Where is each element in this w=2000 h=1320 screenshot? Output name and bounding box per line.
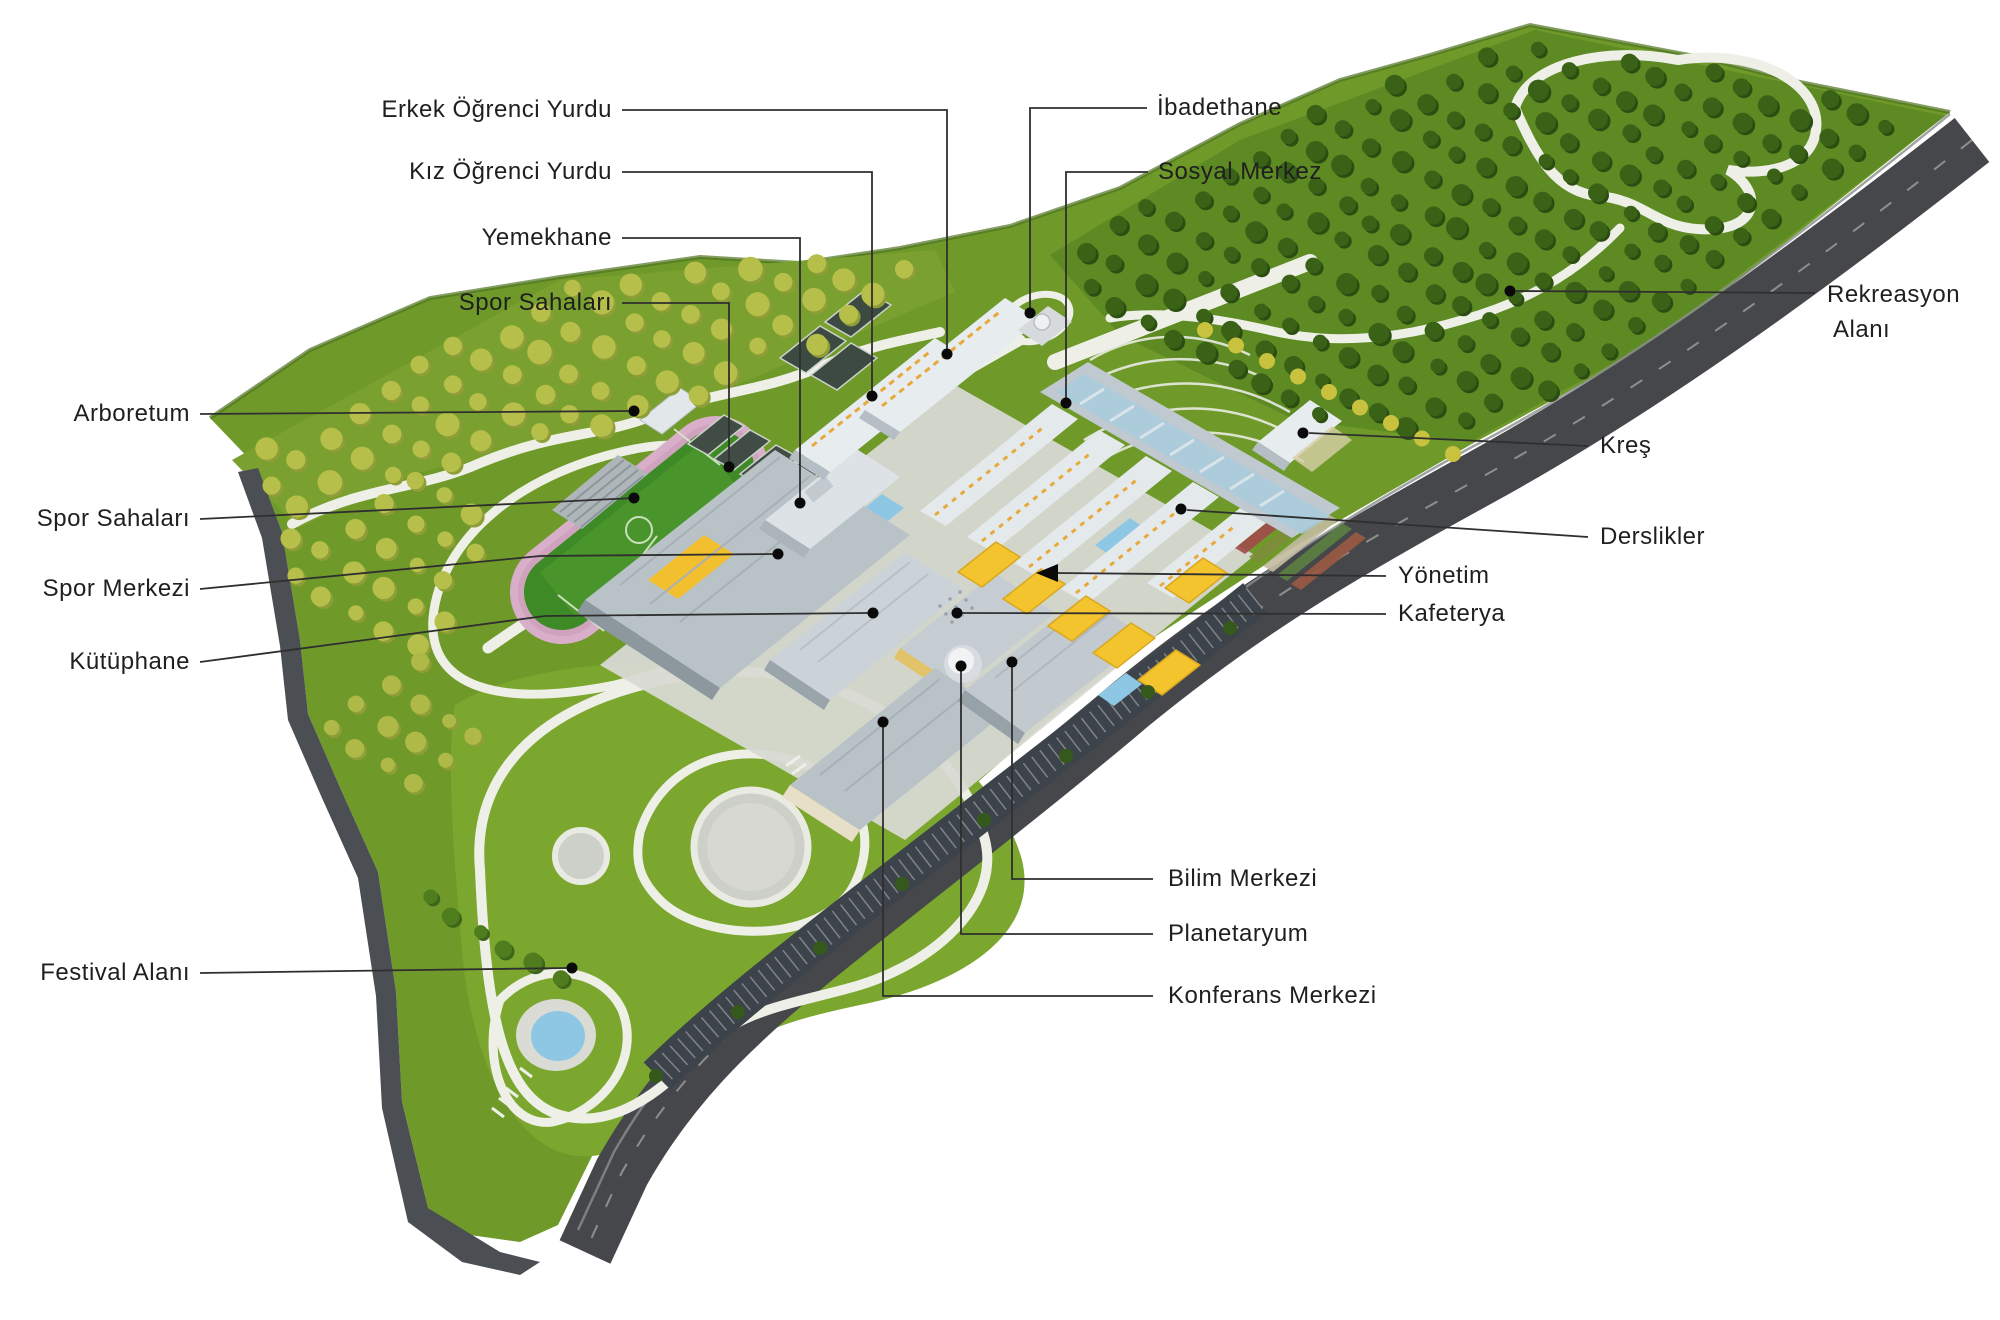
pool-water (531, 1011, 585, 1061)
label-kiz-ogrenci-yurdu: Kız Öğrenci Yurdu (409, 158, 612, 187)
label-festival-alani: Festival Alanı (40, 959, 190, 988)
label-rekreasyon-alani-line2: Alanı (1833, 316, 1890, 345)
festival-plaza-small (555, 830, 607, 882)
masterplan-rendering (0, 0, 2000, 1320)
festival-plaza-inner (707, 803, 795, 891)
label-erkek-ogrenci-yurdu: Erkek Öğrenci Yurdu (381, 96, 612, 125)
label-konferans-merkezi: Konferans Merkezi (1168, 982, 1377, 1011)
label-ibadethane: İbadethane (1157, 94, 1282, 123)
label-spor-sahalari-ust: Spor Sahaları (459, 289, 612, 318)
label-spor-sahalari-sol: Spor Sahaları (37, 505, 190, 534)
label-kafeterya: Kafeterya (1398, 600, 1505, 629)
label-arboretum: Arboretum (73, 400, 190, 429)
label-kutuphane: Kütüphane (69, 648, 190, 677)
leader-kafeterya (962, 613, 1386, 614)
label-yemekhane: Yemekhane (482, 224, 612, 253)
label-yonetim: Yönetim (1398, 562, 1490, 591)
campus-masterplan-figure: Erkek Öğrenci Yurdu Kız Öğrenci Yurdu Ye… (0, 0, 2000, 1320)
label-kres: Kreş (1600, 432, 1651, 461)
label-planetaryum: Planetaryum (1168, 920, 1308, 949)
label-derslikler: Derslikler (1600, 523, 1705, 552)
label-sosyal-merkez: Sosyal Merkez (1158, 158, 1322, 187)
label-bilim-merkezi: Bilim Merkezi (1168, 865, 1317, 894)
label-spor-merkezi: Spor Merkezi (43, 575, 190, 604)
label-rekreasyon-alani-line1: Rekreasyon (1827, 281, 1960, 310)
